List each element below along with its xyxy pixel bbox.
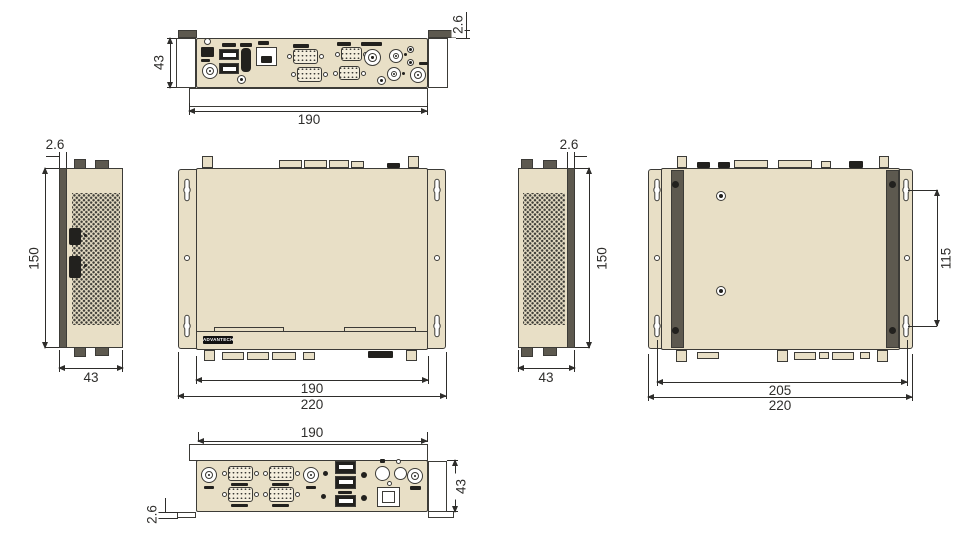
lan-label-blob [258, 41, 269, 45]
right-side-bracket-strip [567, 168, 575, 348]
dim-label-front-width: 190 [296, 426, 328, 439]
bottom-view-body [661, 168, 900, 350]
front-skirt [189, 444, 428, 461]
dim-label-left-flange: 2.6 [44, 138, 66, 151]
front-led-lens [375, 466, 390, 481]
power-button-inner [382, 491, 395, 503]
speaker-icon [404, 53, 407, 56]
hdmi-label-blob [240, 43, 252, 47]
hex-screw-dot [719, 194, 723, 198]
front-mount-tab-left [177, 512, 196, 518]
extension-line [567, 152, 568, 168]
vent-hole-grid [523, 193, 565, 325]
com-label-blob [272, 483, 289, 486]
antenna-connector-icon [202, 63, 218, 79]
dark-connector-bump [849, 161, 863, 168]
dimension-line-right-depth [518, 368, 575, 369]
usb-port-icon [335, 476, 356, 489]
led-indicator-dot [361, 495, 367, 501]
dimension-line-rear-height [170, 38, 171, 88]
bezel-screw-dot [240, 78, 243, 81]
db9-com-port [333, 66, 366, 80]
dim-label-rear-flange: 2.6 [452, 12, 465, 38]
ant-label-blob [419, 62, 428, 65]
keyhole-mount-slot [652, 178, 662, 202]
db9-silhouette-bump [304, 160, 327, 168]
power-terminal [201, 47, 214, 57]
flange-hole [184, 255, 190, 261]
antenna-post-bump [879, 156, 889, 168]
top-view-body [196, 168, 428, 350]
dim-label-rear-width: 190 [294, 113, 324, 126]
corner-screw [672, 327, 679, 334]
corner-screw [672, 181, 679, 188]
dim-label-front-height: 43 [455, 474, 468, 500]
ant-label-blob [204, 486, 214, 489]
usb-port-icon [219, 49, 239, 60]
side-bottom-connector-bump [521, 347, 533, 357]
db9-com-port [263, 466, 300, 481]
advantech-logo-badge: ADVANTECH [203, 336, 233, 344]
power-led-icon [396, 459, 401, 464]
side-bottom-connector-bump [95, 347, 109, 356]
connector-silhouette-bump [821, 161, 831, 168]
ant-label-blob [410, 486, 421, 490]
audio-jack-icon [389, 49, 403, 63]
antenna-connector-icon [201, 467, 217, 483]
com-label-blob [231, 483, 248, 486]
antenna-connector-icon [410, 67, 426, 83]
flange-hole [654, 255, 660, 261]
dim-label-front-flange: 2.6 [146, 502, 159, 528]
connector-silhouette-bump [303, 352, 315, 360]
antenna-post-bump [204, 350, 215, 361]
dimension-line-left-depth [59, 368, 123, 369]
extension-line [158, 512, 178, 513]
extension-line [178, 352, 179, 399]
keyhole-mount-slot [652, 314, 662, 338]
antenna-connector-icon [303, 467, 319, 483]
dimension-line-left-height [45, 168, 46, 348]
corner-screw [889, 181, 896, 188]
antenna-connector-icon [407, 468, 423, 484]
side-bottom-connector-bump [74, 347, 86, 357]
front-bracket-right [428, 461, 447, 512]
keyhole-mount-slot [432, 178, 442, 202]
db9-com-port [287, 49, 324, 64]
card-slot [69, 256, 81, 278]
led-indicator-dot [361, 472, 367, 478]
usb-port-icon [335, 495, 356, 507]
extension-line [446, 352, 447, 399]
led-dot [409, 48, 412, 51]
usb-port-icon [335, 461, 356, 474]
dim-label-top-width: 190 [296, 382, 328, 395]
extension-line [575, 156, 587, 157]
dim-label-top-overall-width: 220 [296, 398, 328, 411]
antenna-post-bump [406, 350, 417, 361]
usb-label-blob [338, 491, 352, 494]
db9-silhouette-bump [279, 160, 302, 168]
dimension-line-front-width [198, 441, 427, 442]
bezel-recess [344, 327, 416, 332]
dimension-line-rear-flange [466, 12, 467, 38]
card-slot [69, 228, 81, 245]
bezel-recess [214, 327, 284, 332]
db9-com-port [291, 67, 328, 82]
lan-rj45-notch [261, 56, 272, 63]
bottom-rail-right [886, 170, 899, 348]
db9-silhouette-bump [778, 160, 812, 168]
extension-line [908, 190, 937, 191]
extension-line [46, 156, 59, 157]
slot-dot [84, 234, 87, 237]
db9-silhouette-bump [794, 352, 816, 360]
connector-silhouette-bump [860, 352, 870, 359]
dimension-drawing-canvas: 43 190 2.6 2.6 150 43 [0, 0, 979, 545]
reset-button-dot [321, 494, 326, 499]
dim-label-mount-pitch-h: 205 [764, 384, 796, 397]
usb-port-icon [219, 63, 239, 74]
dc-input-label-blob [361, 42, 382, 46]
vga-db15-port [335, 47, 368, 61]
db9-silhouette-bump [247, 352, 269, 360]
dim-label-right-height: 150 [596, 246, 609, 272]
db9-silhouette-bump [734, 160, 768, 168]
connector-silhouette-bump [351, 161, 364, 168]
antenna-post-bump [877, 350, 888, 362]
dark-connector-bump [368, 351, 393, 358]
keyhole-mount-slot [182, 178, 192, 202]
com-label-blob [231, 504, 248, 507]
port-label-blob [201, 59, 210, 62]
antenna-post-bump [777, 350, 788, 362]
dim-label-rear-height: 43 [153, 50, 166, 76]
side-bottom-connector-bump [543, 347, 557, 356]
front-led-lens [394, 467, 407, 480]
mic-icon [402, 72, 405, 75]
dim-label-bottom-overall-width: 220 [764, 399, 796, 412]
com-label-blob [293, 44, 309, 48]
ant-label-blob [306, 486, 316, 489]
db9-silhouette-bump [272, 352, 296, 360]
rear-bracket-left [176, 38, 196, 88]
connector-silhouette-bump [697, 352, 719, 359]
extension-line [66, 152, 67, 168]
power-symbol-icon [387, 481, 392, 486]
db9-com-port [263, 487, 300, 502]
hex-screw-dot [719, 289, 723, 293]
rear-mount-tab-left [178, 30, 197, 38]
left-side-bracket-strip [59, 168, 67, 348]
dc-jack-icon [364, 49, 381, 66]
flange-hole [904, 255, 910, 261]
slot-dot [84, 264, 87, 267]
antenna-post-bump [202, 156, 213, 168]
antenna-post-bump [408, 156, 419, 168]
dimension-line-right-height [589, 168, 590, 348]
rear-bracket-right [428, 38, 448, 88]
db9-silhouette-bump [329, 160, 349, 168]
keyhole-mount-slot [182, 314, 192, 338]
hdd-led-icon [380, 459, 385, 463]
dim-label-right-depth: 43 [535, 371, 557, 384]
antenna-post-bump [676, 350, 687, 362]
dim-label-right-flange: 2.6 [558, 138, 580, 151]
rear-skirt [189, 88, 428, 107]
front-mount-tab-right [428, 511, 454, 518]
db9-com-port [222, 487, 259, 502]
dim-label-left-height: 150 [28, 246, 41, 272]
extension-line [908, 326, 937, 327]
flange-hole [434, 255, 440, 261]
hdmi-port-icon [241, 48, 251, 72]
dim-label-left-depth: 43 [80, 371, 102, 384]
audio-jack-icon [387, 67, 401, 81]
extension-line [456, 38, 470, 39]
bottom-rail-left [671, 170, 684, 348]
db9-silhouette-bump [222, 352, 244, 360]
ground-screw-icon [204, 38, 211, 45]
extension-line [59, 152, 60, 168]
dimension-line-front-flange [165, 498, 166, 512]
db9-silhouette-bump [832, 352, 854, 360]
connector-silhouette-bump [819, 352, 829, 359]
com-label-blob [272, 504, 289, 507]
vga-label-blob [337, 42, 351, 46]
usb-label-blob [222, 43, 236, 47]
led-dot [409, 61, 412, 64]
corner-screw [889, 327, 896, 334]
reset-button-dot [323, 471, 328, 476]
antenna-post-bump [677, 156, 687, 168]
dim-label-mount-pitch-v: 115 [940, 246, 953, 272]
db9-com-port [222, 466, 259, 481]
extension-line [574, 152, 575, 168]
extension-line [158, 518, 178, 519]
keyhole-mount-slot [432, 314, 442, 338]
bezel-screw-dot [380, 79, 383, 82]
